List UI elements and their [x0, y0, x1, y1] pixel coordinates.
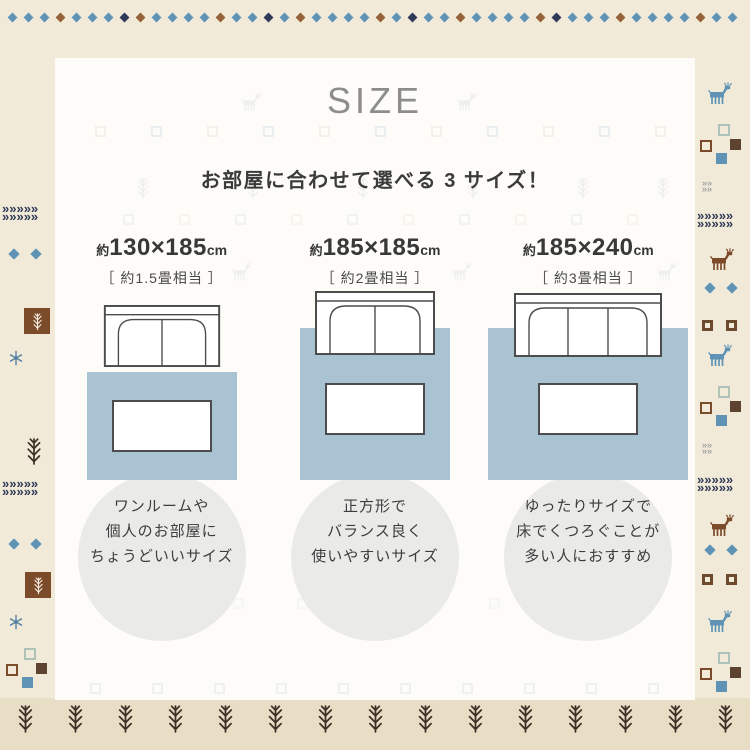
diamond-icon	[279, 12, 289, 22]
ghost-motif	[319, 126, 330, 137]
size-caption: 正方形で バランス良く 使いやすいサイズ	[270, 494, 480, 569]
tree-twig-icon	[465, 703, 486, 734]
content-panel: SIZE お部屋に合わせて選べる 3 サイズ！ 約130×185cm ［ 約1.…	[55, 58, 695, 700]
ghost-motif	[515, 214, 526, 225]
diamond-icon	[631, 12, 641, 22]
diamond-icon	[647, 12, 657, 22]
diamond-icon	[7, 12, 17, 22]
diamond-icon	[359, 12, 369, 22]
ghost-motif	[291, 214, 302, 225]
diamond-icon	[327, 12, 337, 22]
caption-line: 正方形で	[270, 494, 480, 519]
ghost-motif	[655, 126, 666, 137]
diamond-icon	[423, 12, 433, 22]
deer-icon	[708, 514, 734, 538]
sofa-icon	[103, 305, 221, 367]
size-heading: 約185×185cm	[268, 234, 481, 262]
table-icon	[112, 400, 212, 452]
diamond-icon	[535, 12, 545, 22]
tree-twig-icon	[415, 703, 436, 734]
chevron-arrows-icon: »»»»»»»»»»	[697, 212, 733, 228]
ghost-motif	[487, 126, 498, 137]
square-motif-icon	[702, 574, 742, 588]
size-option-2: 約185×185cm ［ 約2畳相当 ］ 正方形で バランス良く 使いやすいサイ…	[268, 226, 481, 666]
diamond-icon	[551, 12, 561, 22]
ghost-motif	[95, 126, 106, 137]
sofa-icon	[514, 293, 662, 357]
size-heading: 約185×240cm	[482, 234, 695, 262]
ghost-motif	[543, 126, 554, 137]
diamond-icon	[391, 12, 401, 22]
diamond-icon	[151, 12, 161, 22]
diamond-icon	[55, 12, 65, 22]
diamond-icon	[471, 12, 481, 22]
ghost-motif	[179, 214, 190, 225]
ghost-motif	[403, 214, 414, 225]
unit-label: cm	[634, 242, 654, 258]
ghost-motif	[599, 126, 610, 137]
ghost-motif	[151, 126, 162, 137]
dimensions-value: 185×240	[536, 234, 634, 261]
caption-line: ワンルームや	[57, 494, 267, 519]
deer-icon	[706, 82, 732, 106]
size-caption: ゆったりサイズで 床でくつろぐことが 多い人におすすめ	[483, 494, 693, 569]
size-infographic: »»»»»»»»»»»»»»»»»»»»»»»»»»»»»»»»»»»»»»»»…	[0, 0, 750, 750]
diamond-icon	[263, 12, 273, 22]
diamond-icon	[10, 540, 56, 550]
deer-icon	[708, 248, 734, 272]
diamond-icon	[10, 250, 56, 260]
diamond-icon	[663, 12, 673, 22]
chevron-arrows-icon: »»»»»»»»»»	[697, 476, 733, 492]
tree-twig-icon	[15, 703, 36, 734]
diamond-icon	[23, 12, 33, 22]
tatami-equivalent: ［ 約3畳相当 ］	[482, 268, 695, 288]
page-title: SIZE	[55, 80, 695, 122]
caption-line: バランス良く	[270, 519, 480, 544]
ghost-motif	[276, 683, 287, 694]
tree-twig-icon	[24, 436, 44, 466]
caption-line: 個人のお部屋に	[57, 519, 267, 544]
ghost-motif	[207, 126, 218, 137]
unit-label: cm	[420, 242, 440, 258]
snowflake-icon	[8, 350, 24, 366]
deer-icon	[706, 344, 732, 368]
tree-twig-icon	[615, 703, 636, 734]
ghost-motif	[648, 683, 659, 694]
square-motif-icon	[6, 648, 50, 692]
diamond-icon	[679, 12, 689, 22]
tatami-equivalent: ［ 約2畳相当 ］	[268, 268, 481, 288]
diamond-icon	[311, 12, 321, 22]
top-border-diamonds	[4, 9, 746, 25]
diamond-icon	[343, 12, 353, 22]
rug-icon	[87, 372, 237, 480]
diamond-icon	[135, 12, 145, 22]
ghost-motif	[375, 126, 386, 137]
tree-twig-icon	[65, 703, 86, 734]
caption-line: ゆったりサイズで	[483, 494, 693, 519]
snowflake-icon	[8, 614, 24, 630]
square-motif-icon	[700, 652, 744, 696]
tree-twig-icon	[365, 703, 386, 734]
ghost-motif	[152, 683, 163, 694]
ghost-motif	[462, 683, 473, 694]
size-columns: 約130×185cm ［ 約1.5畳相当 ］ ワンルームや 個人のお部屋に ちょ…	[55, 226, 695, 666]
diamond-icon	[695, 12, 705, 22]
diamond-icon	[439, 12, 449, 22]
approx-label: 約	[96, 243, 109, 258]
caption-line: ちょうどいいサイズ	[57, 544, 267, 569]
ghost-motif	[263, 126, 274, 137]
ghost-motif	[235, 214, 246, 225]
diamond-icon	[706, 284, 750, 294]
ghost-motif	[459, 214, 470, 225]
ghost-motif	[338, 683, 349, 694]
diamond-icon	[167, 12, 177, 22]
bottom-border-trees	[0, 703, 750, 734]
tree-twig-icon	[715, 703, 736, 734]
tatami-equivalent: ［ 約1.5畳相当 ］	[55, 268, 268, 288]
diamond-icon	[583, 12, 593, 22]
tree-twig-icon	[515, 703, 536, 734]
diamond-icon	[567, 12, 577, 22]
square-motif-icon	[24, 308, 50, 334]
square-motif-icon	[702, 320, 742, 334]
diamond-icon	[231, 12, 241, 22]
square-motif-icon	[25, 572, 51, 598]
ghost-motif	[347, 214, 358, 225]
diamond-icon	[706, 546, 750, 556]
subtitle: お部屋に合わせて選べる 3 サイズ！	[55, 164, 695, 193]
tree-twig-icon	[315, 703, 336, 734]
diamond-icon	[247, 12, 257, 22]
caption-line: 多い人におすすめ	[483, 544, 693, 569]
approx-label: 約	[310, 243, 323, 258]
sofa-icon	[315, 291, 435, 355]
ghost-motif	[524, 683, 535, 694]
diamond-icon	[215, 12, 225, 22]
size-option-1: 約130×185cm ［ 約1.5畳相当 ］ ワンルームや 個人のお部屋に ちょ…	[55, 226, 268, 666]
ghost-motif	[571, 214, 582, 225]
square-motif-icon	[700, 124, 744, 168]
tree-twig-icon	[565, 703, 586, 734]
diamond-icon	[375, 12, 385, 22]
diamond-icon	[119, 12, 129, 22]
diamond-icon	[295, 12, 305, 22]
tree-twig-icon	[265, 703, 286, 734]
chevron-arrows-icon: »»»»»»»»»»	[2, 205, 38, 221]
diamond-icon	[183, 12, 193, 22]
diamond-icon	[455, 12, 465, 22]
size-heading: 約130×185cm	[55, 234, 268, 262]
ghost-motif	[627, 214, 638, 225]
diamond-icon	[71, 12, 81, 22]
diamond-icon	[727, 12, 737, 22]
size-option-3: 約185×240cm ［ 約3畳相当 ］ ゆったりサイズで 床でくつろぐことが …	[482, 226, 695, 666]
ghost-motif	[214, 683, 225, 694]
dimensions-value: 130×185	[109, 234, 207, 261]
chevron-arrows-icon: »»»»»»»»»»	[2, 480, 38, 496]
table-icon	[538, 383, 638, 435]
approx-label: 約	[523, 243, 536, 258]
diamond-icon	[599, 12, 609, 22]
tree-twig-icon	[215, 703, 236, 734]
diamond-icon	[711, 12, 721, 22]
diamond-icon	[407, 12, 417, 22]
caption-line: 床でくつろぐことが	[483, 519, 693, 544]
tree-twig-icon	[165, 703, 186, 734]
table-icon	[325, 383, 425, 435]
diamond-icon	[519, 12, 529, 22]
chevron-arrows-icon: »»»»	[702, 442, 712, 454]
tree-twig-icon	[665, 703, 686, 734]
deer-icon	[706, 610, 732, 634]
ghost-motif	[586, 683, 597, 694]
ghost-motif	[90, 683, 101, 694]
caption-line: 使いやすいサイズ	[270, 544, 480, 569]
diamond-icon	[87, 12, 97, 22]
tree-twig-icon	[115, 703, 136, 734]
diamond-icon	[487, 12, 497, 22]
diamond-icon	[503, 12, 513, 22]
diamond-icon	[39, 12, 49, 22]
chevron-arrows-icon: »»»»	[702, 180, 712, 192]
diamond-icon	[199, 12, 209, 22]
size-caption: ワンルームや 個人のお部屋に ちょうどいいサイズ	[57, 494, 267, 569]
diamond-icon	[103, 12, 113, 22]
square-motif-icon	[700, 386, 744, 430]
diamond-icon	[615, 12, 625, 22]
unit-label: cm	[207, 242, 227, 258]
ghost-motif	[400, 683, 411, 694]
dimensions-value: 185×185	[323, 234, 421, 261]
ghost-motif	[431, 126, 442, 137]
ghost-motif	[123, 214, 134, 225]
